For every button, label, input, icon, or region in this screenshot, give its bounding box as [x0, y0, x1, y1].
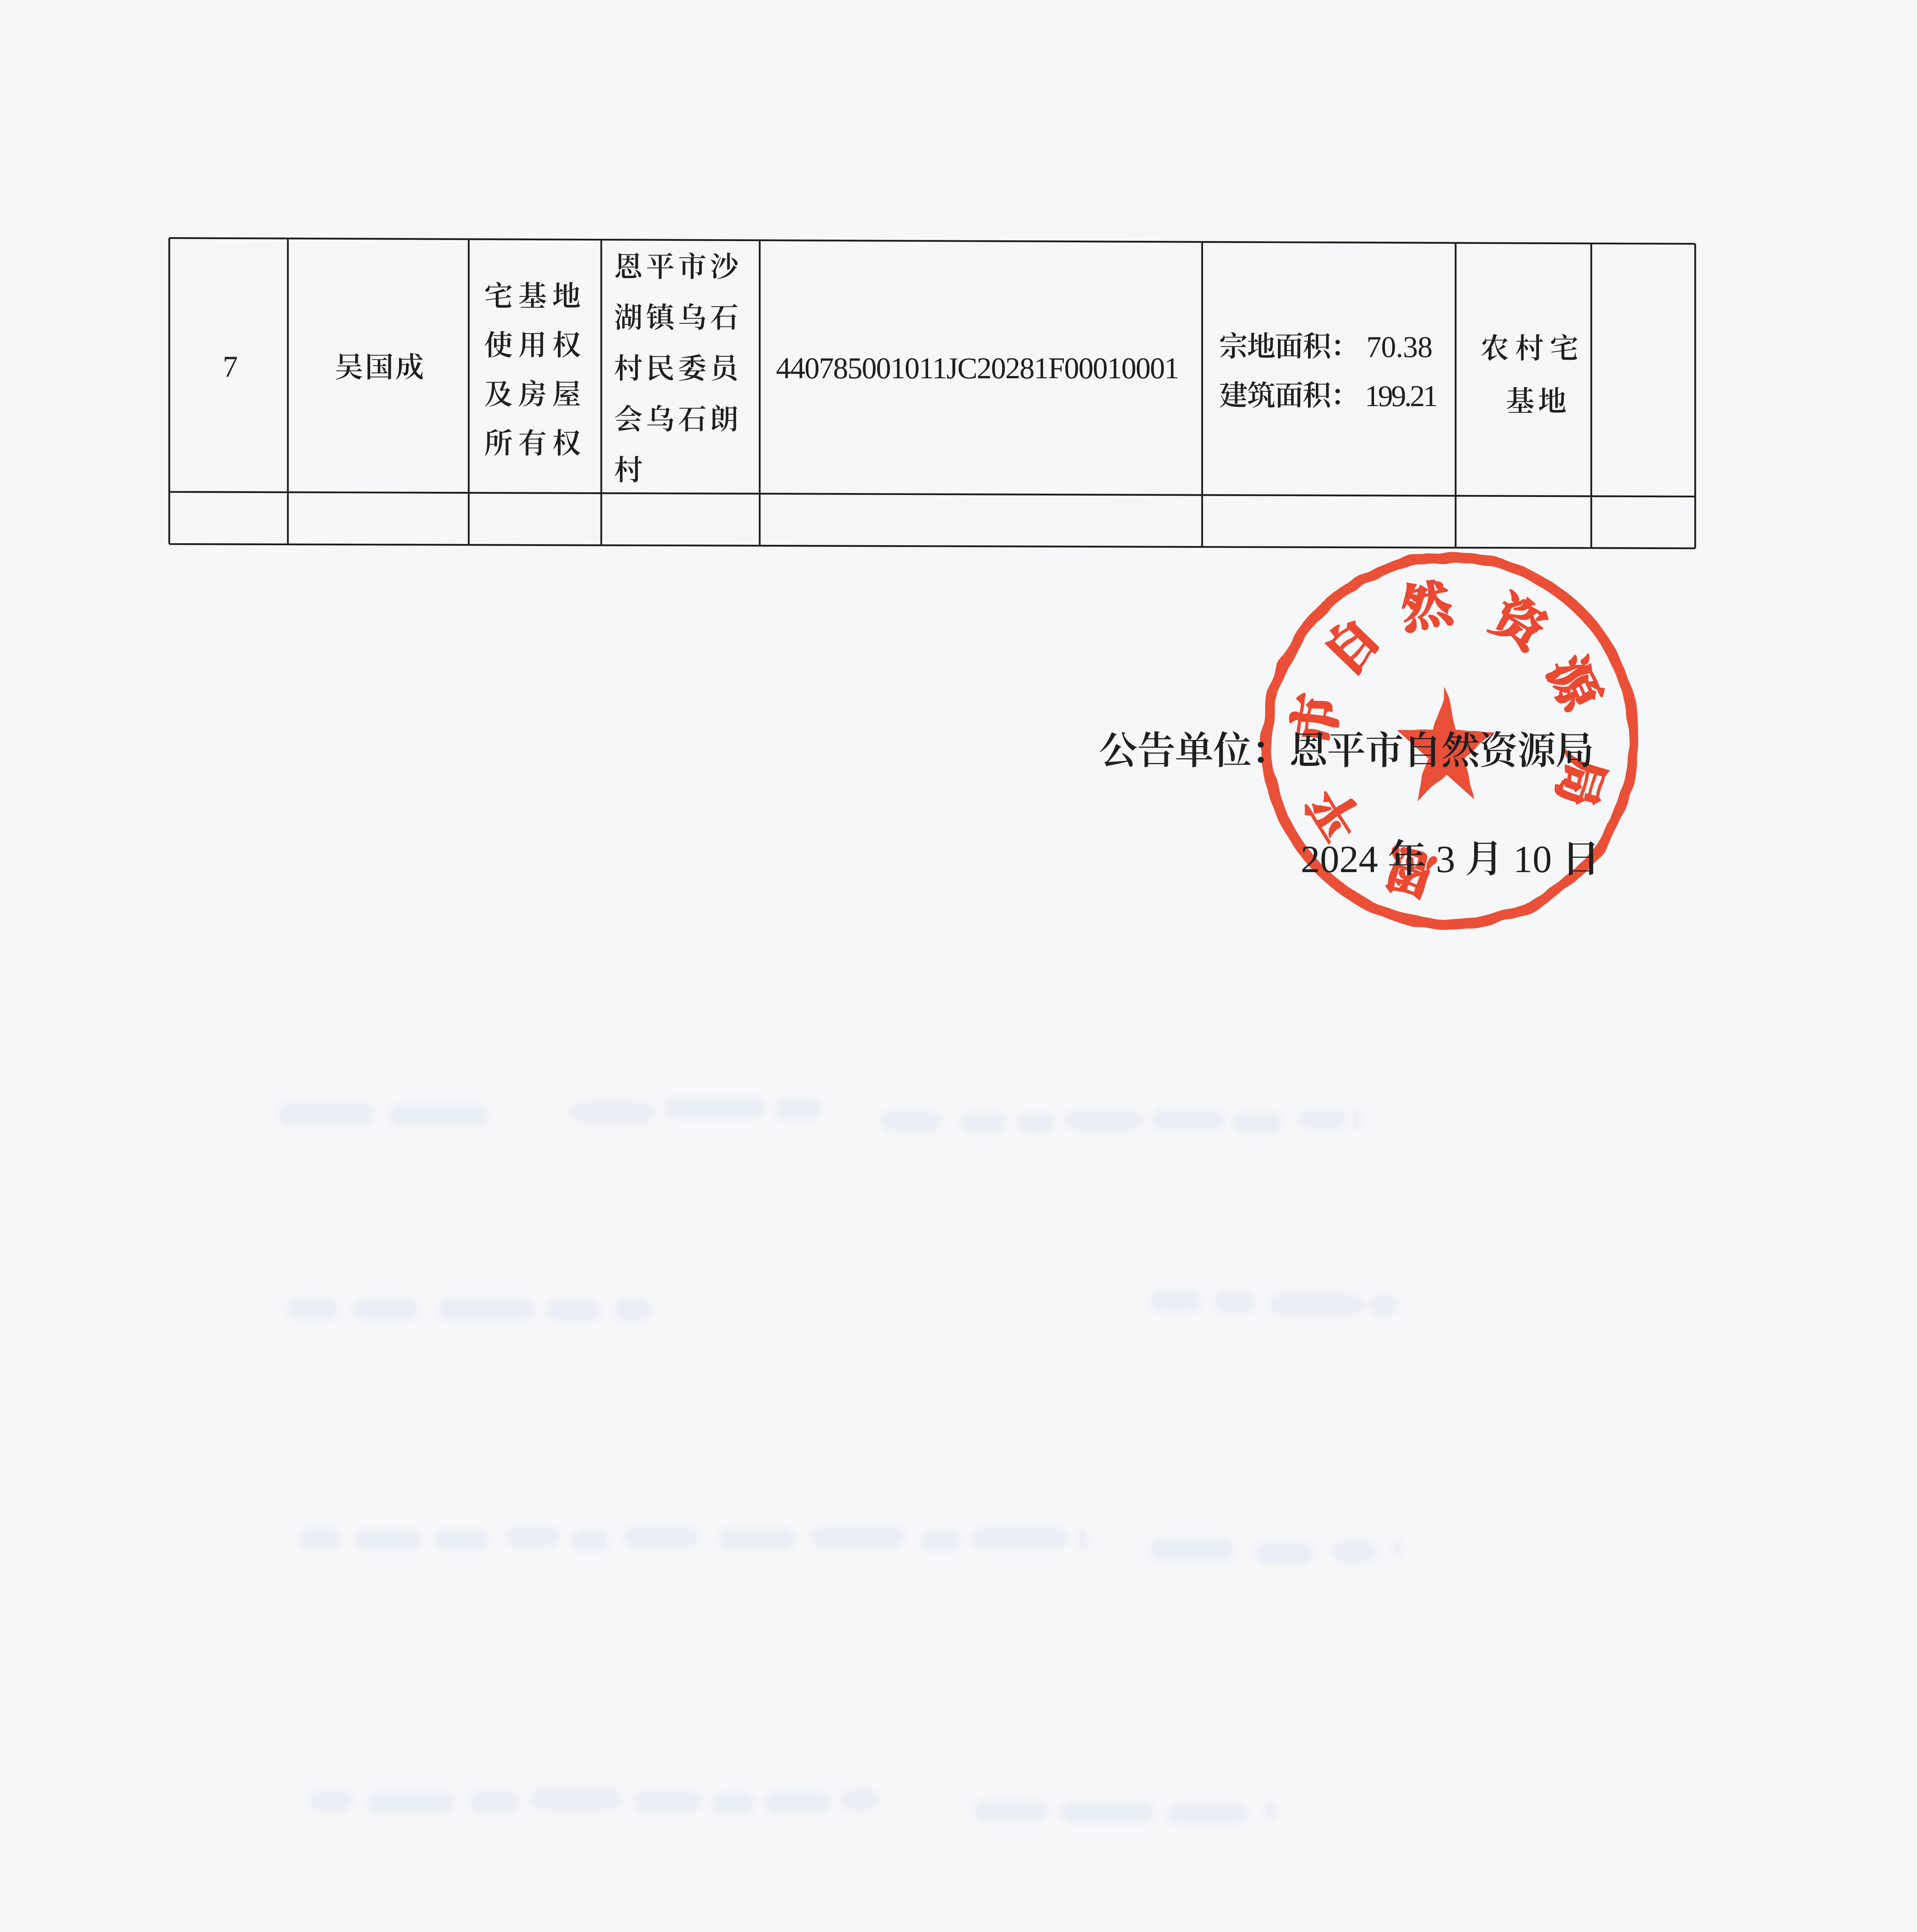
svg-text:70.38: 70.38 — [1366, 330, 1432, 364]
svg-text:199.21: 199.21 — [1365, 379, 1437, 413]
svg-text:2024: 2024 — [1301, 838, 1378, 881]
svg-text:7: 7 — [223, 350, 238, 383]
svg-text:10: 10 — [1513, 838, 1552, 881]
svg-text:3: 3 — [1436, 838, 1455, 881]
svg-text:440785001011JC20281F00010001: 440785001011JC20281F00010001 — [776, 351, 1179, 385]
